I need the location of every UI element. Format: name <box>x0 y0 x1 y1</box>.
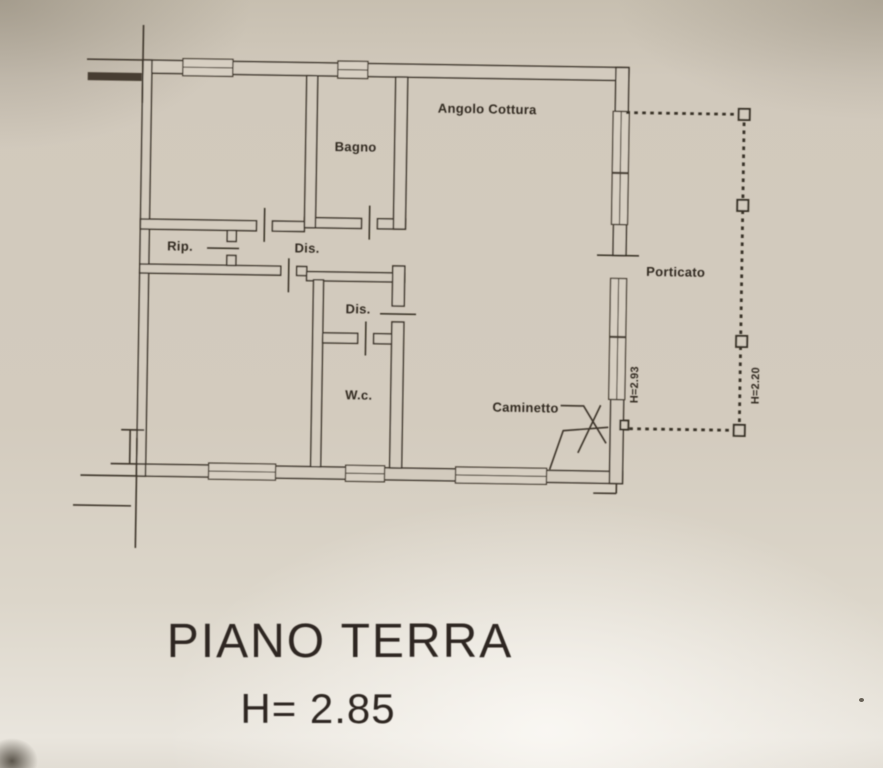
caption: PIANO TERRA H= 2.85 <box>167 615 514 732</box>
room-label-porticato: Porticato <box>646 264 705 280</box>
interior-walls <box>137 73 408 468</box>
room-label-angolo-cottura: Angolo Cottura <box>438 101 537 118</box>
room-label-dis-top: Dis. <box>294 240 319 255</box>
caption-title: PIANO TERRA <box>167 615 514 668</box>
scanned-floor-plan: Bagno Angolo Cottura Rip. Dis. Dis. W.c.… <box>0 0 883 768</box>
door-ticks <box>205 203 639 360</box>
photo-speck <box>859 698 864 702</box>
room-label-bagno: Bagno <box>335 139 377 155</box>
height-annotation-right-wall: H=2.93 <box>629 366 642 403</box>
room-label-wc: W.c. <box>345 387 372 402</box>
floor-plan-drawing: Bagno Angolo Cottura Rip. Dis. Dis. W.c.… <box>0 0 883 768</box>
height-annotation-porticato: H=2.20 <box>750 367 763 404</box>
room-label-dis-lower: Dis. <box>345 301 370 316</box>
room-label-caminetto: Caminetto <box>492 400 558 416</box>
room-labels: Bagno Angolo Cottura Rip. Dis. Dis. W.c.… <box>165 96 767 418</box>
caption-height: H= 2.85 <box>240 685 395 732</box>
room-label-rip: Rip. <box>167 238 193 253</box>
